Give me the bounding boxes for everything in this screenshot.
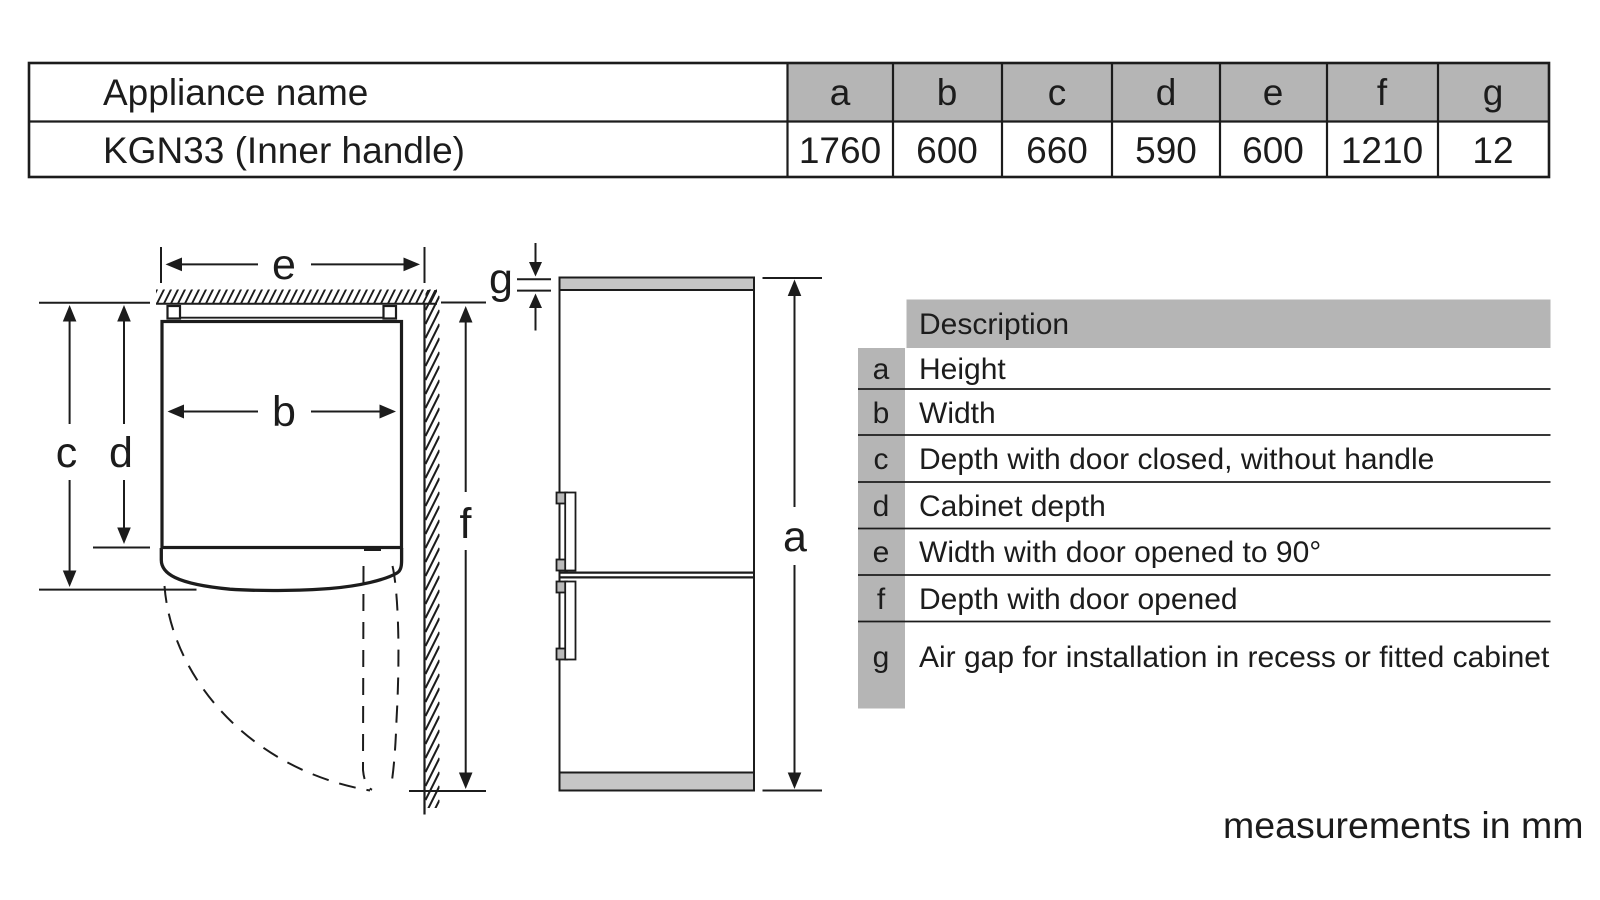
- svg-text:g: g: [873, 641, 890, 674]
- svg-text:c: c: [56, 429, 78, 477]
- svg-text:b: b: [873, 397, 890, 430]
- svg-text:Appliance name: Appliance name: [103, 72, 368, 113]
- svg-text:1760: 1760: [799, 130, 881, 171]
- svg-text:660: 660: [1026, 130, 1088, 171]
- svg-text:b: b: [272, 388, 296, 436]
- svg-text:f: f: [460, 500, 473, 548]
- svg-text:a: a: [783, 513, 807, 561]
- svg-text:e: e: [272, 241, 296, 289]
- svg-text:600: 600: [916, 130, 978, 171]
- svg-text:c: c: [1048, 72, 1067, 113]
- svg-text:d: d: [1156, 72, 1177, 113]
- svg-text:Depth with door opened: Depth with door opened: [919, 583, 1238, 616]
- svg-text:f: f: [1377, 72, 1388, 113]
- svg-text:1210: 1210: [1341, 130, 1423, 171]
- svg-text:Cabinet depth: Cabinet depth: [919, 490, 1106, 523]
- svg-text:c: c: [874, 443, 889, 476]
- svg-text:g: g: [489, 255, 513, 303]
- svg-text:590: 590: [1135, 130, 1197, 171]
- svg-text:f: f: [877, 583, 886, 616]
- svg-text:d: d: [109, 429, 133, 477]
- svg-text:Width with door opened to 90°: Width with door opened to 90°: [919, 536, 1321, 569]
- svg-text:e: e: [1263, 72, 1284, 113]
- svg-text:e: e: [873, 536, 890, 569]
- svg-text:Depth with door closed, withou: Depth with door closed, without handle: [919, 443, 1434, 476]
- svg-text:Air gap for installation in re: Air gap for installation in recess or fi…: [919, 641, 1550, 674]
- svg-text:Height: Height: [919, 353, 1006, 386]
- svg-text:a: a: [830, 72, 851, 113]
- svg-text:Description: Description: [919, 308, 1069, 341]
- svg-text:12: 12: [1472, 130, 1513, 171]
- svg-text:600: 600: [1242, 130, 1304, 171]
- svg-text:Width: Width: [919, 397, 996, 430]
- svg-text:d: d: [873, 490, 890, 523]
- svg-text:b: b: [937, 72, 958, 113]
- svg-text:measurements in mm: measurements in mm: [1223, 804, 1584, 846]
- svg-text:g: g: [1483, 72, 1504, 113]
- svg-text:a: a: [873, 353, 890, 386]
- svg-text:KGN33 (Inner handle): KGN33 (Inner handle): [103, 130, 465, 171]
